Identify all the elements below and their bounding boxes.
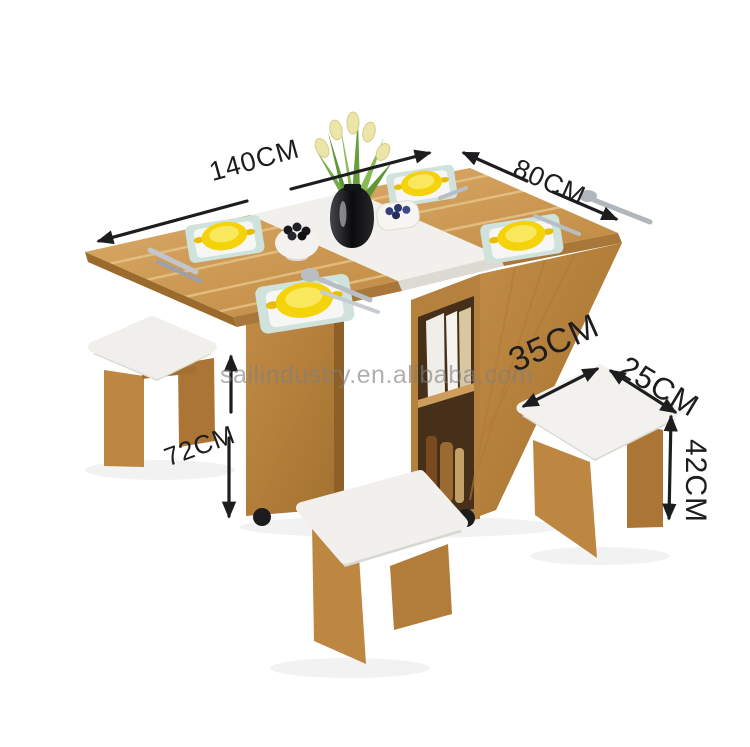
vase-body <box>330 186 374 248</box>
stool-leg <box>390 544 452 630</box>
front-stool <box>302 476 462 664</box>
dim-arrow-stool-height <box>669 417 671 518</box>
stool-leg <box>533 440 597 558</box>
calla-lilies <box>312 112 392 163</box>
table-support-leg <box>246 300 344 526</box>
watermark-text: sailindustry.en.alibaba.com <box>220 361 533 390</box>
product-image: 140CM 80CM 72CM 35CM 25CM 42CM sailindus… <box>0 0 750 747</box>
caster-wheel <box>253 508 271 526</box>
dim-label-stool-height: 42CM <box>678 435 712 527</box>
stool-leg <box>104 370 144 467</box>
